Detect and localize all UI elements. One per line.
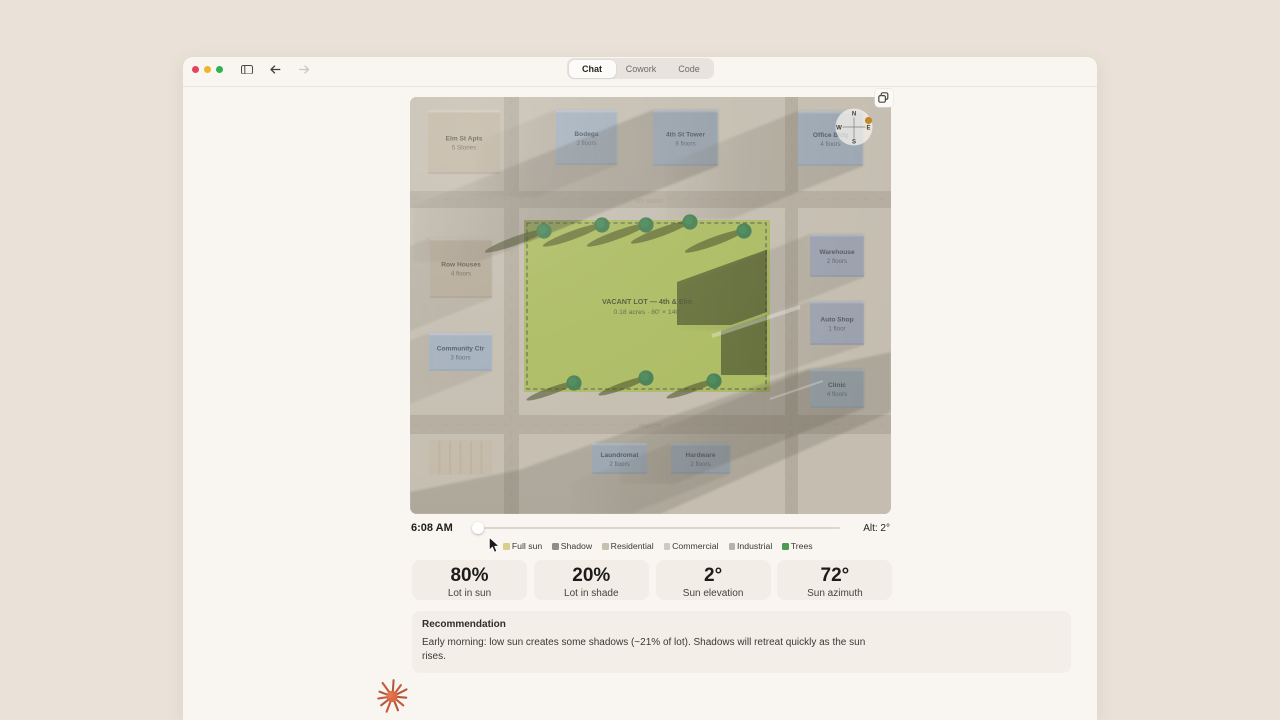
svg-text:E: E (866, 126, 870, 132)
svg-text:N: N (852, 112, 856, 118)
svg-text:W: W (836, 126, 842, 132)
svg-text:S: S (852, 140, 856, 146)
